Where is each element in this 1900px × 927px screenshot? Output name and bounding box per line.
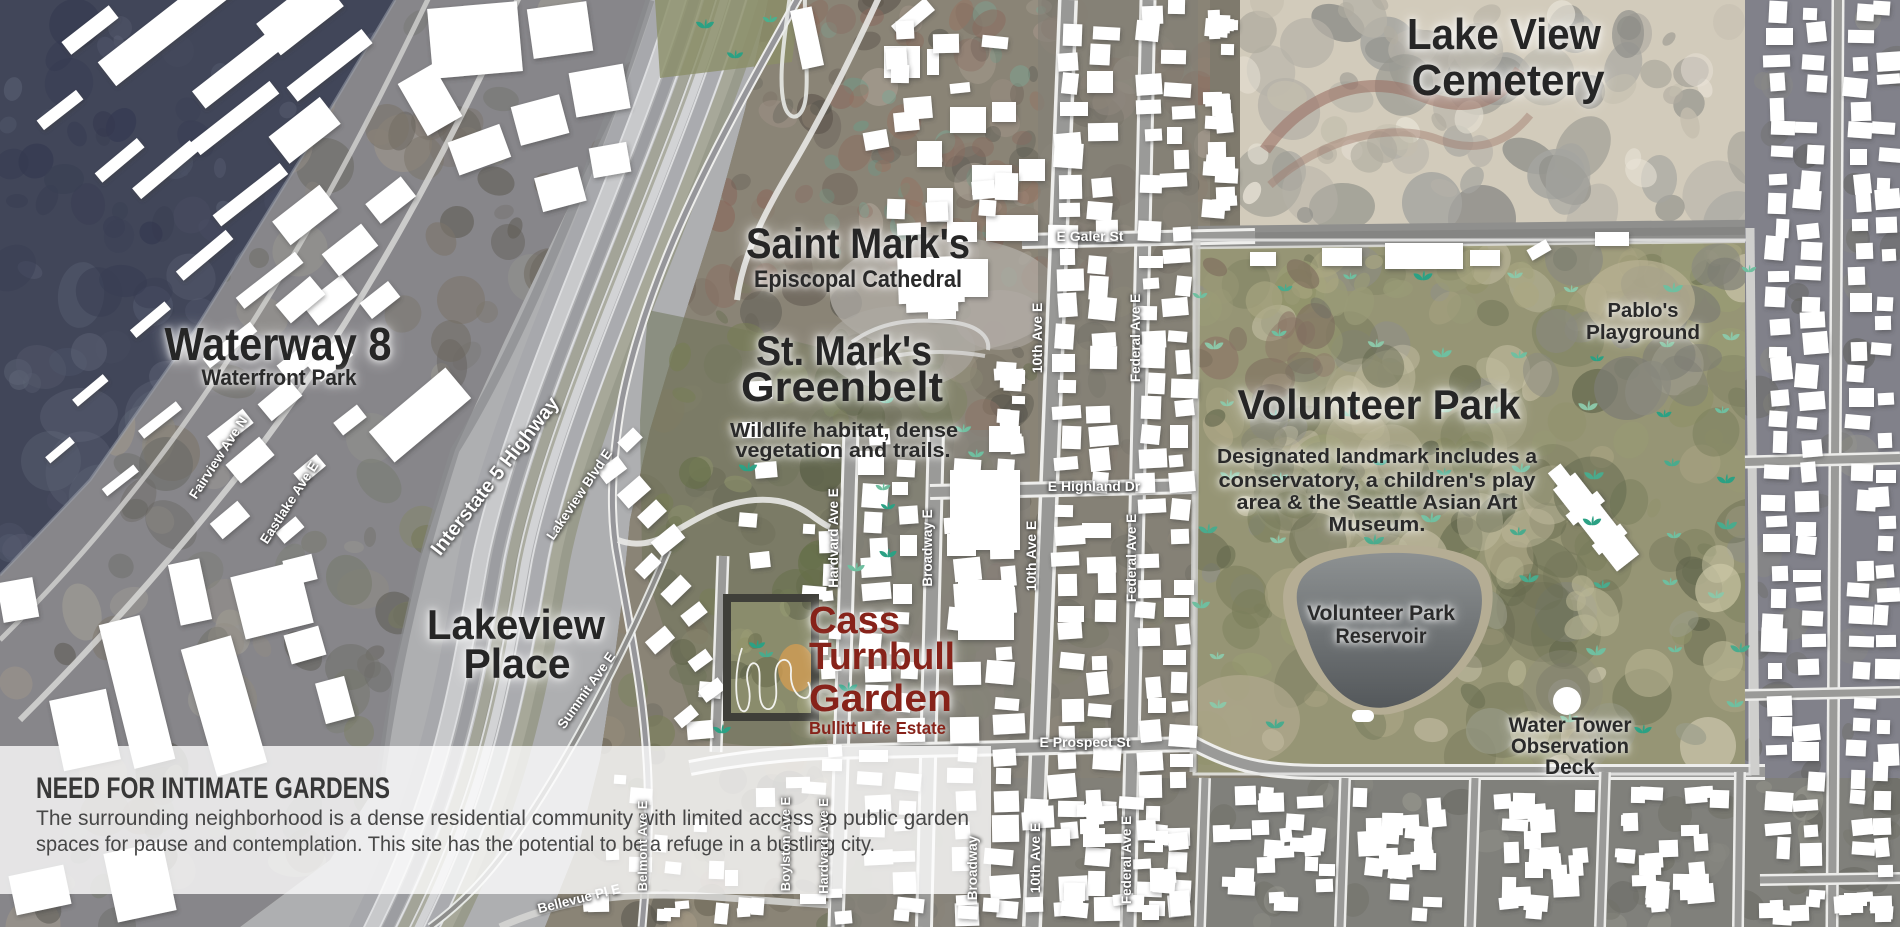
svg-text:Pablo's: Pablo's [1608, 300, 1679, 322]
svg-text:Episcopal Cathedral: Episcopal Cathedral [754, 266, 962, 293]
svg-text:NEED FOR INTIMATE GARDENS: NEED FOR INTIMATE GARDENS [36, 772, 390, 805]
svg-text:E Prospect St: E Prospect St [1039, 734, 1130, 750]
svg-text:Broadway E: Broadway E [920, 509, 935, 586]
svg-text:spaces for pause and contempla: spaces for pause and contemplation. This… [36, 833, 875, 856]
svg-text:Federal Ave E: Federal Ave E [1124, 514, 1139, 602]
svg-text:10th Ave E: 10th Ave E [1023, 521, 1039, 592]
svg-text:Hardvard Ave E: Hardvard Ave E [826, 488, 841, 588]
svg-text:Garden: Garden [809, 678, 952, 720]
svg-text:Waterfront Park: Waterfront Park [202, 365, 358, 390]
svg-text:10th Ave E: 10th Ave E [1029, 303, 1045, 374]
svg-text:Reservoir: Reservoir [1336, 625, 1427, 648]
svg-text:Saint Mark's: Saint Mark's [746, 220, 970, 268]
svg-text:Broadway: Broadway [965, 835, 980, 900]
svg-text:Hardvard Ave E: Hardvard Ave E [816, 798, 831, 894]
svg-text:Boylston Ave E: Boylston Ave E [778, 796, 793, 891]
svg-text:area & the Seattle Asian Art: area & the Seattle Asian Art [1237, 492, 1518, 514]
svg-text:conservatory, a children's pla: conservatory, a children's play [1219, 470, 1537, 492]
svg-text:Volunteer Park: Volunteer Park [1307, 602, 1455, 625]
svg-text:Turnbull: Turnbull [809, 636, 955, 678]
svg-text:Belmont Ave E: Belmont Ave E [635, 800, 650, 891]
svg-text:Museum.: Museum. [1329, 514, 1426, 536]
svg-text:Bullitt Life Estate: Bullitt Life Estate [809, 718, 946, 738]
svg-text:Federal Ave E: Federal Ave E [1128, 294, 1143, 382]
svg-text:Waterway 8: Waterway 8 [165, 318, 392, 370]
svg-text:Playground: Playground [1586, 322, 1700, 344]
svg-text:Lake View: Lake View [1407, 10, 1602, 59]
svg-text:vegetation and trails.: vegetation and trails. [736, 439, 951, 462]
svg-text:Designated landmark includes a: Designated landmark includes a [1217, 446, 1538, 468]
svg-text:Federal Ave E: Federal Ave E [1119, 816, 1134, 904]
svg-text:Volunteer Park: Volunteer Park [1238, 381, 1522, 428]
svg-text:Deck: Deck [1545, 755, 1595, 779]
svg-text:E Highland Dr: E Highland Dr [1048, 478, 1141, 494]
svg-text:Place: Place [464, 640, 571, 687]
svg-text:E Galer St: E Galer St [1057, 228, 1124, 244]
svg-text:10th Ave E: 10th Ave E [1027, 823, 1043, 894]
svg-text:Greenbelt: Greenbelt [741, 363, 943, 410]
svg-text:Cemetery: Cemetery [1412, 56, 1606, 105]
